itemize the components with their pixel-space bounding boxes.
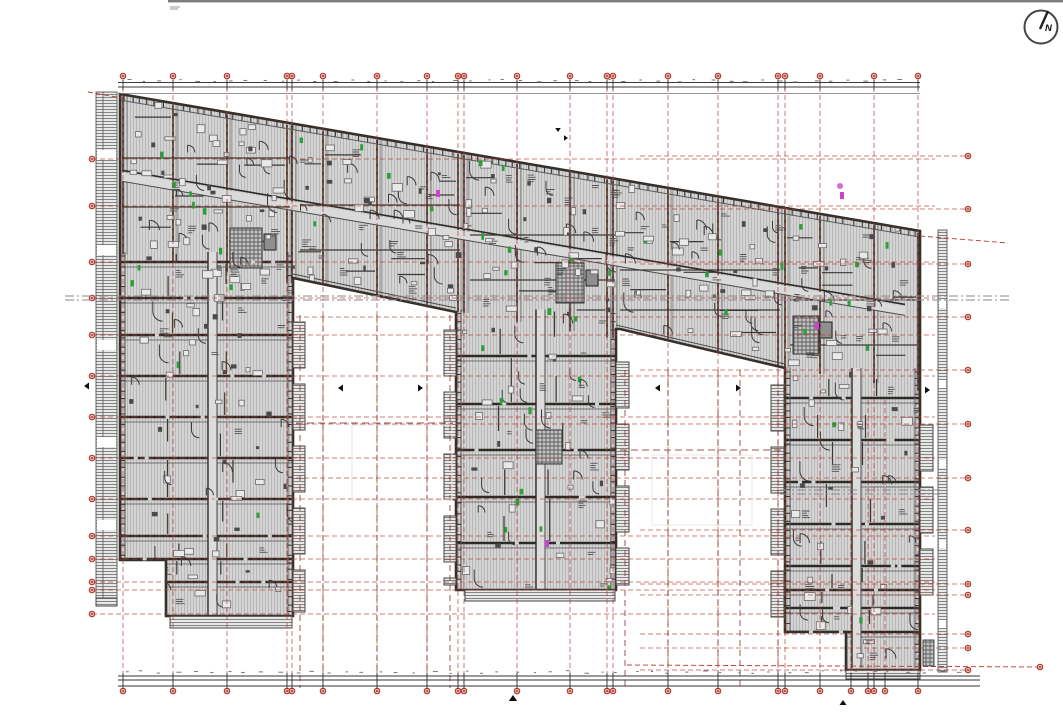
- svg-text:N: N: [1045, 23, 1053, 34]
